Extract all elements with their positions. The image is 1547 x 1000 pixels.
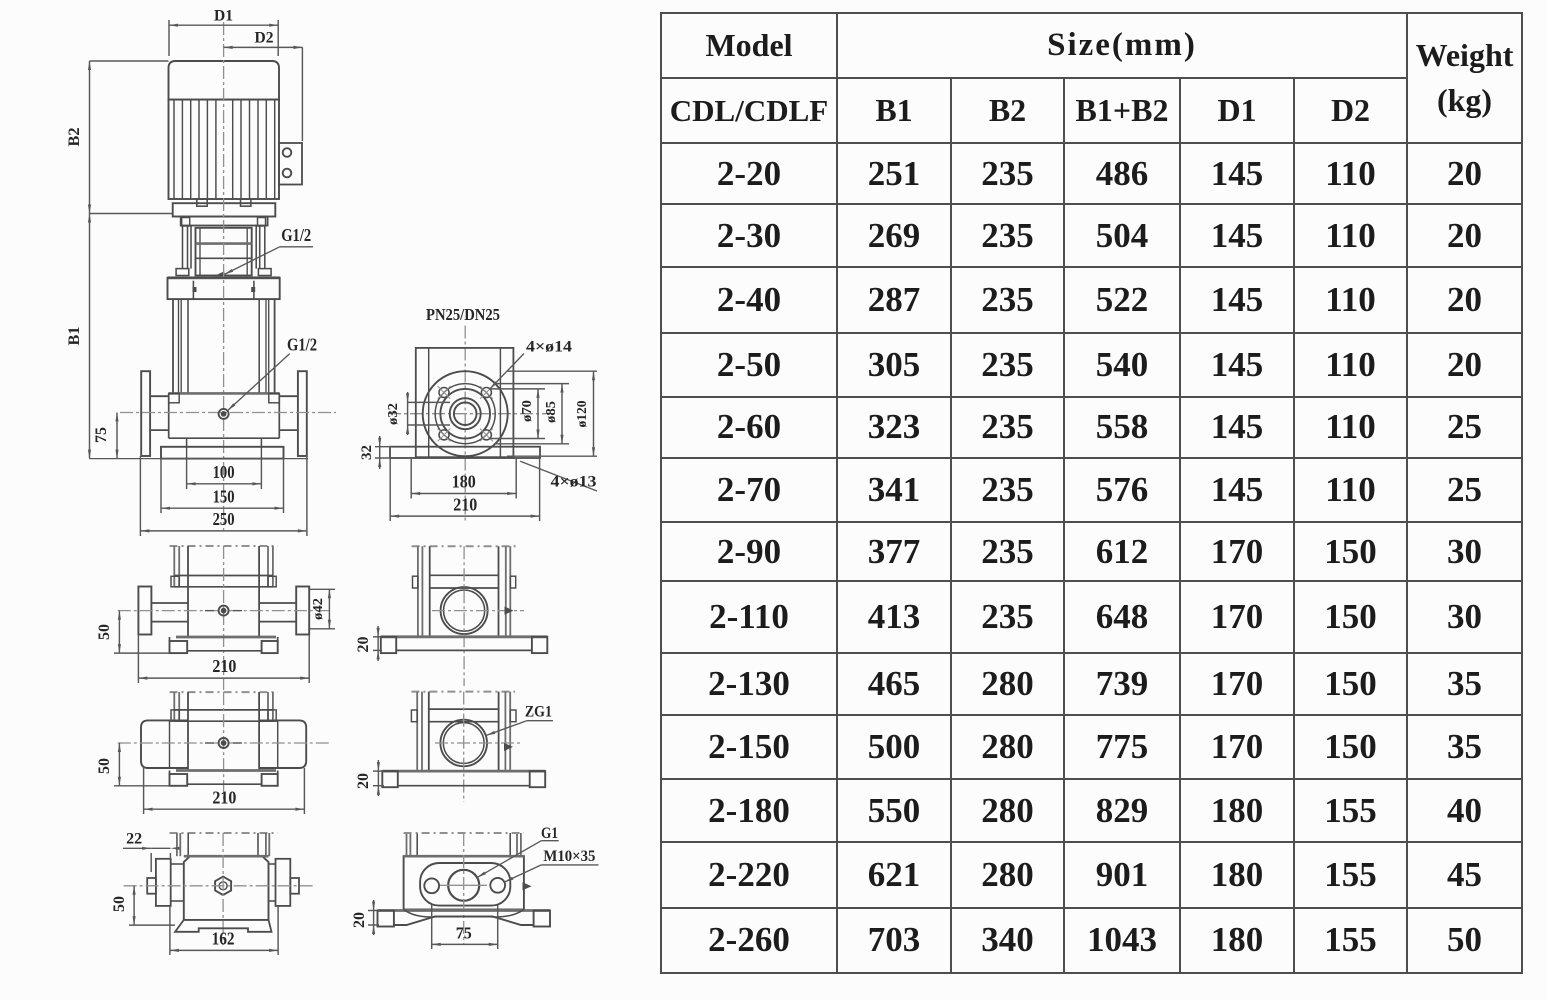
svg-text:250: 250 [213, 509, 235, 529]
svg-text:G1/2: G1/2 [287, 335, 317, 355]
svg-text:ø32: ø32 [386, 403, 401, 425]
svg-text:4×ø13: 4×ø13 [551, 473, 597, 490]
svg-text:150: 150 [213, 486, 235, 506]
svg-text:B1: B1 [66, 327, 83, 346]
svg-text:100: 100 [213, 462, 235, 482]
svg-text:D1: D1 [214, 8, 233, 25]
svg-text:ø70: ø70 [520, 400, 535, 422]
svg-text:210: 210 [453, 494, 477, 514]
svg-text:M10×35: M10×35 [543, 848, 595, 865]
svg-text:75: 75 [93, 427, 110, 443]
svg-text:G1/2: G1/2 [281, 225, 311, 245]
svg-text:ZG1: ZG1 [525, 704, 552, 721]
svg-text:32: 32 [359, 445, 375, 460]
svg-text:75: 75 [456, 924, 472, 943]
svg-text:210: 210 [212, 656, 236, 676]
svg-text:ø120: ø120 [575, 401, 590, 428]
svg-text:20: 20 [355, 773, 372, 789]
svg-text:4×ø14: 4×ø14 [526, 339, 572, 356]
svg-text:PN25/DN25: PN25/DN25 [426, 305, 500, 324]
svg-text:D2: D2 [255, 30, 274, 47]
svg-text:50: 50 [96, 624, 113, 640]
svg-text:22: 22 [126, 831, 142, 848]
svg-text:20: 20 [355, 637, 372, 653]
svg-text:B2: B2 [66, 128, 83, 147]
svg-text:ø42: ø42 [311, 598, 326, 620]
svg-text:162: 162 [212, 929, 235, 949]
svg-text:180: 180 [452, 472, 476, 492]
svg-text:ø85: ø85 [544, 401, 559, 423]
svg-text:20: 20 [351, 912, 368, 928]
svg-text:50: 50 [111, 896, 128, 912]
svg-text:50: 50 [96, 758, 113, 774]
svg-text:210: 210 [212, 787, 236, 807]
svg-text:G1: G1 [541, 825, 558, 842]
